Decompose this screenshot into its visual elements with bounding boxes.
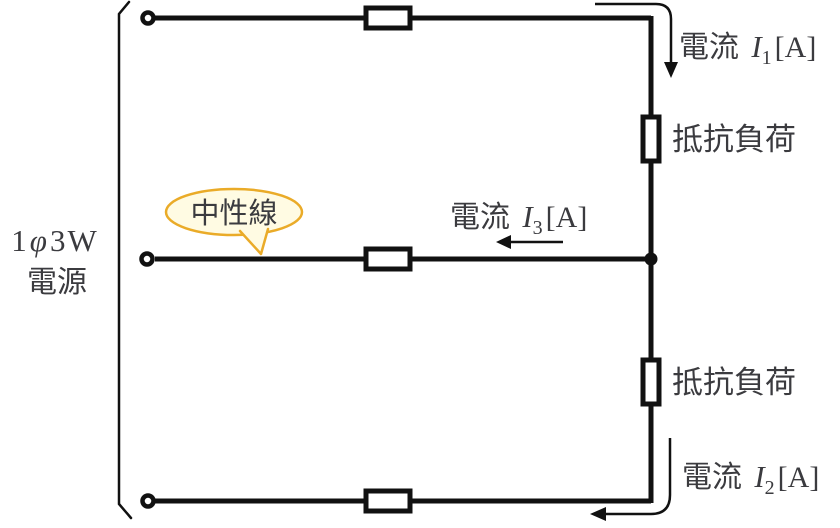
source-label: 電源 <box>27 266 87 299</box>
current-label-i2: 電流 I2[A] <box>682 459 819 499</box>
current-arrow-i1 <box>595 4 671 64</box>
circuit-canvas: 1φ3W 電源 中性線 電 <box>0 0 840 528</box>
load-label-lower: 抵抗負荷 <box>672 365 796 400</box>
neutral-callout-label: 中性線 <box>190 197 277 230</box>
line-resistor-neutral <box>366 249 410 269</box>
terminal-bottom <box>143 496 154 507</box>
current-arrowhead-i3 <box>496 235 511 249</box>
source-bracket <box>119 2 131 518</box>
load-resistor-lower <box>643 360 659 404</box>
terminal-neutral <box>142 254 153 265</box>
junction-dot <box>645 253 658 266</box>
terminal-top <box>143 13 154 24</box>
load-resistor-upper <box>643 117 659 161</box>
current-arrowhead-i2 <box>590 507 606 521</box>
current-arrowhead-i1 <box>664 62 678 78</box>
source-phase-label: 1φ3W <box>11 223 98 258</box>
line-resistor-bottom <box>366 491 410 511</box>
current-label-i3: 電流 I3[A] <box>450 199 587 239</box>
load-label-upper: 抵抗負荷 <box>672 122 796 157</box>
line-resistor-top <box>366 8 410 28</box>
current-label-i1: 電流 I1[A] <box>679 29 816 69</box>
circuit-diagram: 1φ3W 電源 中性線 電 <box>0 0 840 528</box>
